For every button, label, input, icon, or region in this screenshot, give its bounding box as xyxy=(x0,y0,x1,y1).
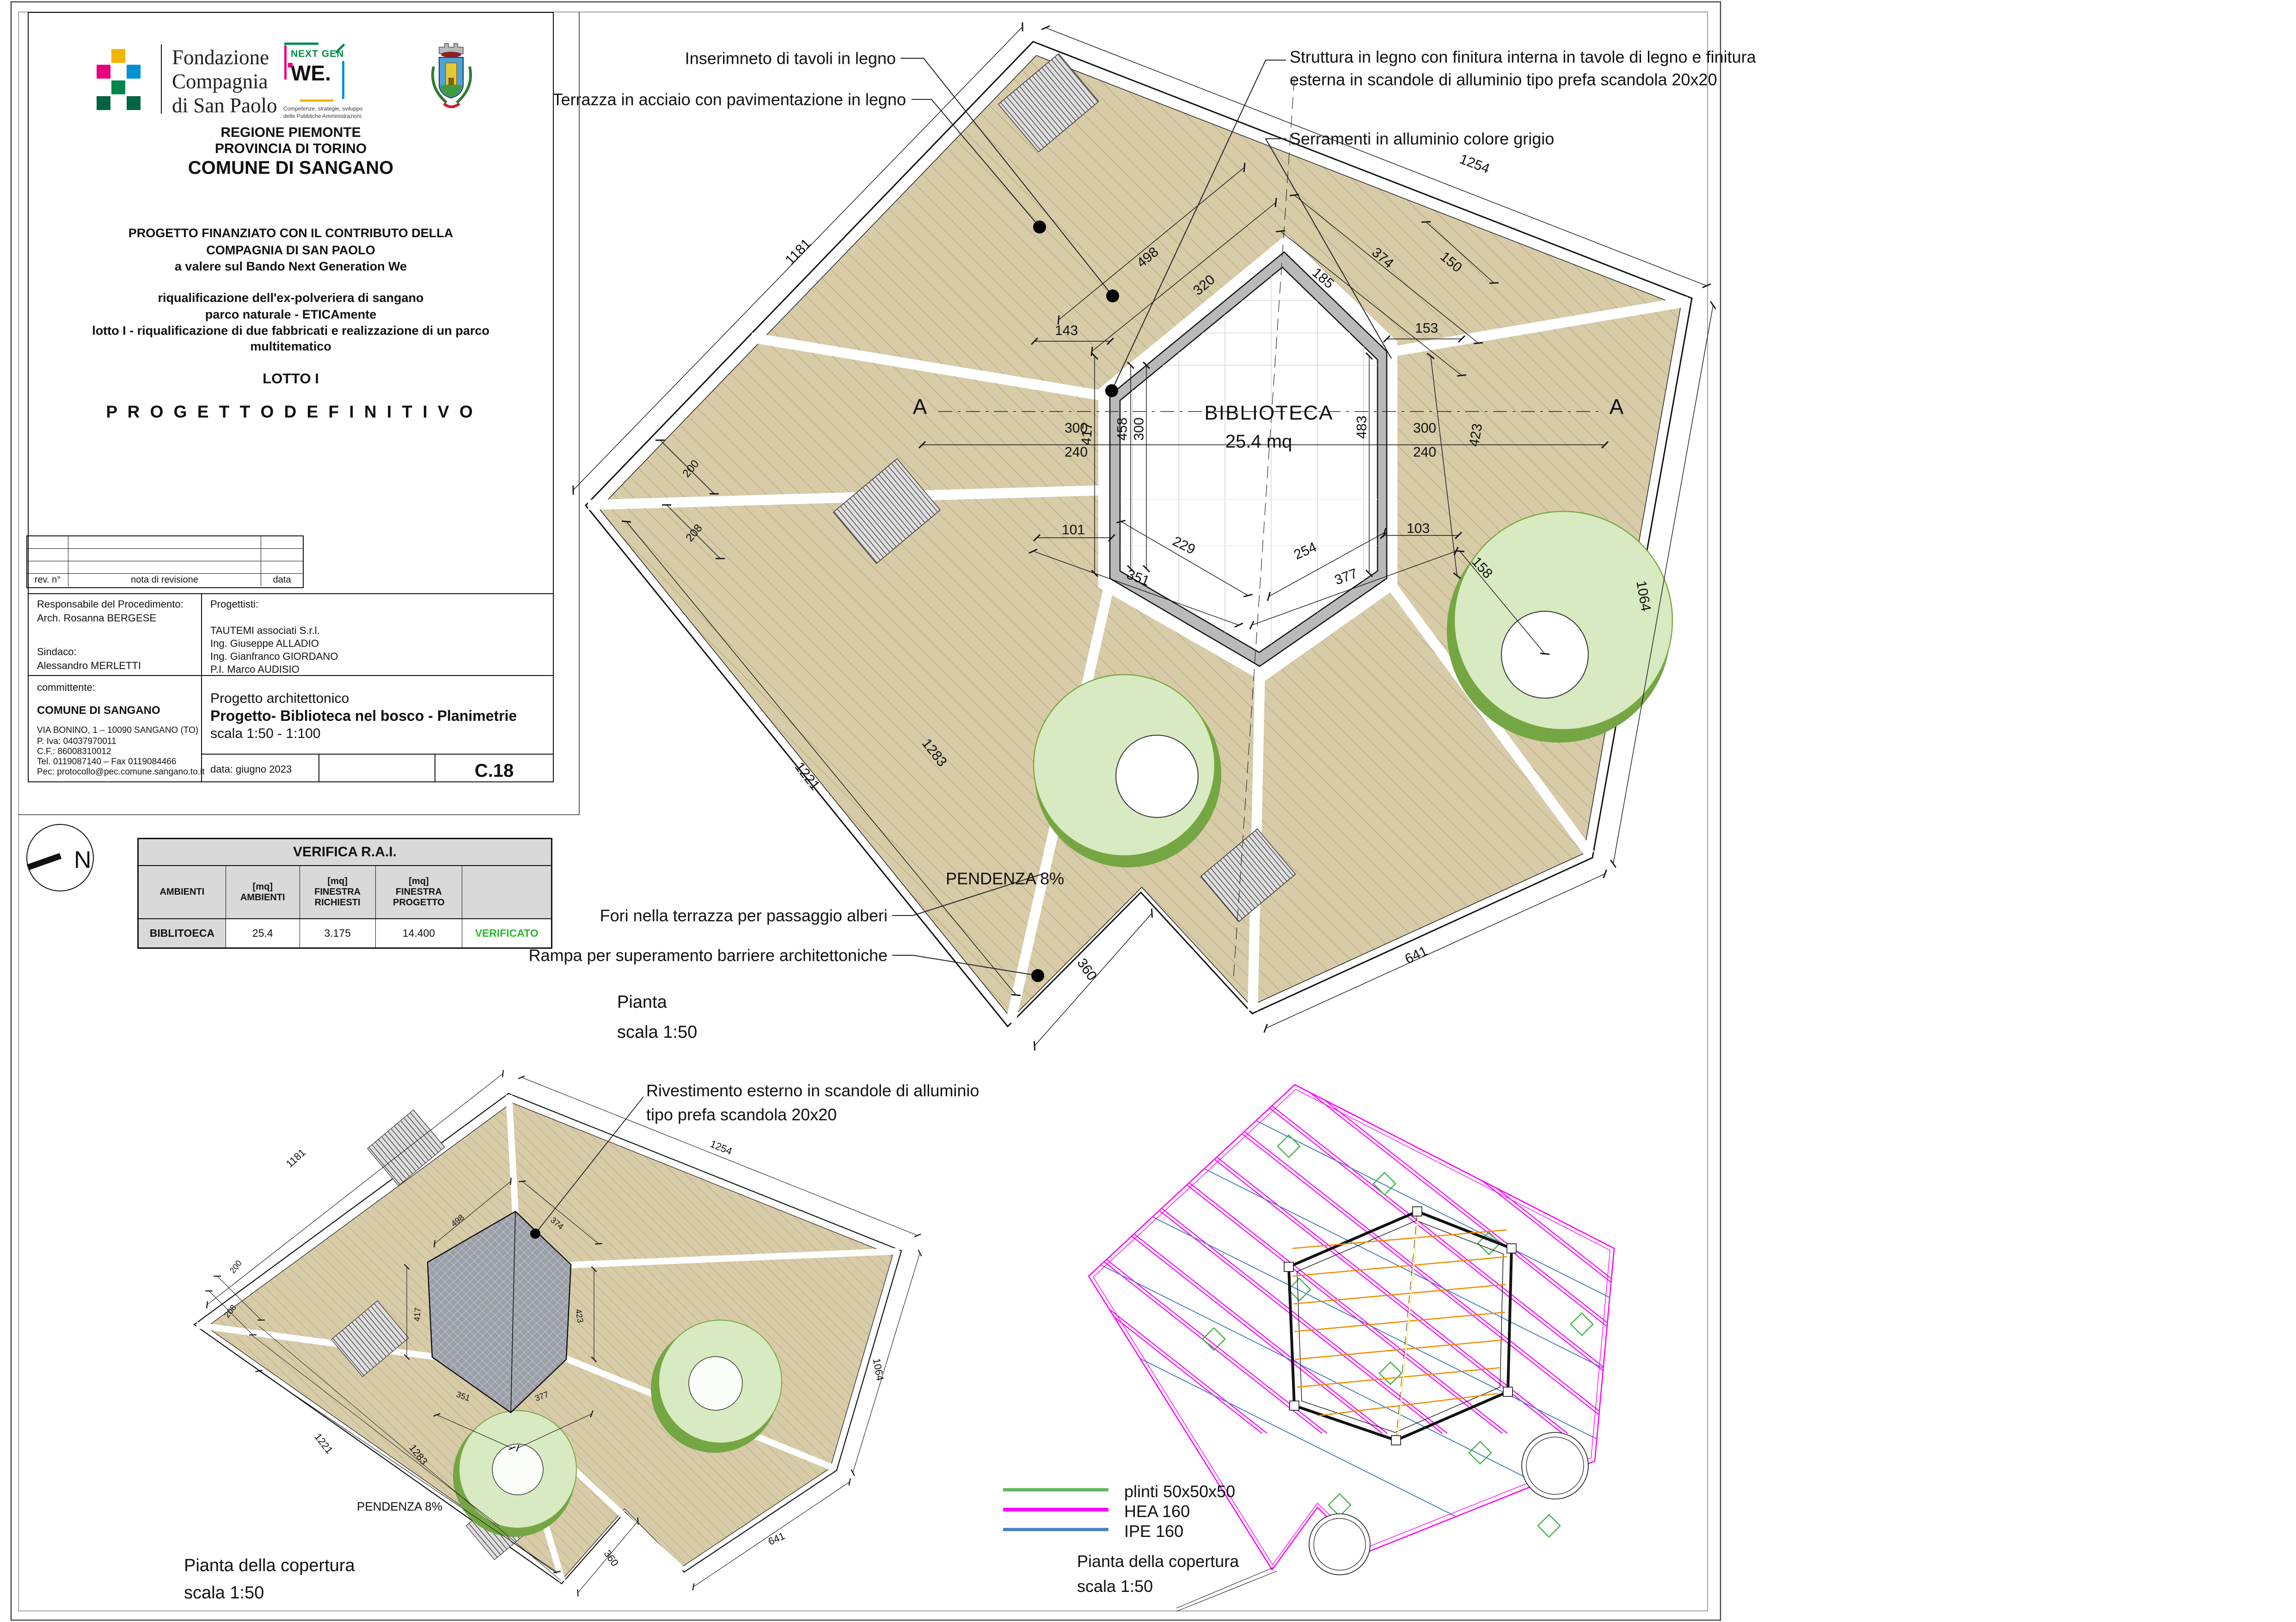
dim-1254: 1254 xyxy=(1457,151,1492,178)
dim-101: 101 xyxy=(1062,521,1085,539)
sdim-1283: 1283 xyxy=(406,1442,430,1468)
plan-labels-layer: Inserimneto di tavoli in legnoTerrazza i… xyxy=(0,0,2296,1622)
sdim-374: 374 xyxy=(548,1215,565,1232)
sdim-200: 200 xyxy=(227,1258,244,1276)
dim-240L: 240 xyxy=(1065,443,1088,461)
pendenza-roof: PENDENZA 8% xyxy=(357,1499,442,1514)
dim-320: 320 xyxy=(1190,271,1218,300)
sdim-1181: 1181 xyxy=(283,1146,308,1170)
dim-143: 143 xyxy=(1055,322,1078,339)
dim-1181: 1181 xyxy=(782,235,815,269)
section-a-right: A xyxy=(1610,393,1624,420)
dim-374: 374 xyxy=(1368,244,1397,272)
sdim-351: 351 xyxy=(455,1389,471,1403)
ann-struttura: Struttura in legno con finitura interna … xyxy=(1290,46,1756,91)
dim-377: 377 xyxy=(1332,565,1360,589)
ann-serramenti: Serramenti in alluminio colore grigio xyxy=(1290,129,1554,149)
sdim-377: 377 xyxy=(533,1389,550,1403)
plan-title-main: Pianta scala 1:50 xyxy=(617,987,697,1047)
dim-300R: 300 xyxy=(1413,419,1436,437)
dim-200: 200 xyxy=(680,457,703,480)
sdim-641: 641 xyxy=(766,1530,787,1548)
room-label: BIBLIOTECA xyxy=(1204,400,1333,426)
dim-458: 458 xyxy=(1114,418,1131,441)
plan-title-roof-left: Pianta della copertura scala 1:50 xyxy=(184,1552,355,1607)
dim-351: 351 xyxy=(1124,566,1152,590)
sdim-208: 208 xyxy=(222,1303,239,1320)
dim-423: 423 xyxy=(1465,422,1487,448)
dim-641: 641 xyxy=(1402,942,1430,968)
room-area: 25.4 mq xyxy=(1225,430,1292,453)
sdim-417: 417 xyxy=(412,1307,423,1322)
sdim-498: 498 xyxy=(449,1212,466,1229)
section-a-left: A xyxy=(913,393,927,420)
sdim-423: 423 xyxy=(573,1308,585,1323)
ann-rivestimento: Rivestimento esterno in scandole di allu… xyxy=(646,1079,979,1127)
dim-185: 185 xyxy=(1309,264,1337,293)
dim-254: 254 xyxy=(1292,539,1320,564)
dim-229: 229 xyxy=(1169,533,1198,559)
dim-360: 360 xyxy=(1073,955,1100,984)
dim-417: 417 xyxy=(1078,422,1097,446)
ann-tavoli: Inserimneto di tavoli in legno xyxy=(685,48,896,69)
ann-rampa: Rampa per superamento barriere architett… xyxy=(529,945,888,966)
dim-150: 150 xyxy=(1437,248,1465,276)
dim-498: 498 xyxy=(1133,244,1162,272)
dim-208: 208 xyxy=(683,522,706,545)
dim-240R: 240 xyxy=(1413,443,1436,461)
dim-1283: 1283 xyxy=(918,735,951,770)
sdim-1254: 1254 xyxy=(708,1137,734,1158)
drawing-sheet: Fondazione Compagnia di San Paolo NEXT G… xyxy=(0,0,2296,1622)
sdim-1064: 1064 xyxy=(870,1358,887,1382)
ann-fori: Fori nella terrazza per passaggio alberi xyxy=(600,905,888,926)
dim-153: 153 xyxy=(1415,319,1438,337)
pendenza-main: PENDENZA 8% xyxy=(946,868,1064,889)
dim-1064: 1064 xyxy=(1632,579,1655,613)
dim-300v: 300 xyxy=(1130,418,1148,441)
dim-1221: 1221 xyxy=(791,759,824,794)
dim-103: 103 xyxy=(1407,520,1430,537)
ann-terrazza: Terrazza in acciaio con pavimentazione i… xyxy=(553,89,906,110)
plan-title-roof-right: Pianta della copertura scala 1:50 xyxy=(1077,1549,1239,1599)
sdim-360: 360 xyxy=(601,1548,621,1569)
dim-158: 158 xyxy=(1468,553,1496,582)
dim-483: 483 xyxy=(1353,416,1371,439)
sdim-1221: 1221 xyxy=(312,1431,336,1456)
